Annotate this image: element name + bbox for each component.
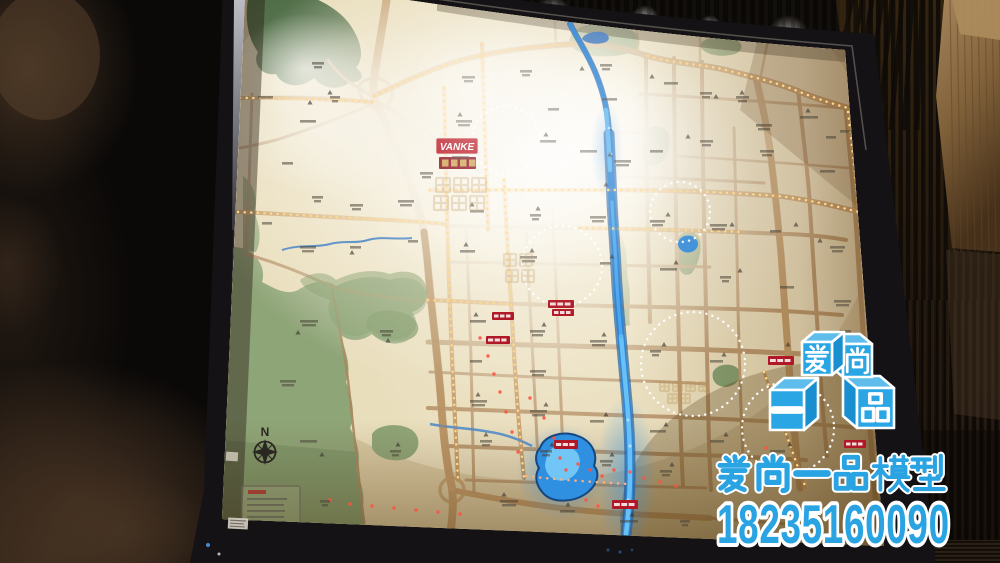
- svg-text:18235160090: 18235160090: [717, 494, 950, 555]
- svg-text:N: N: [261, 425, 270, 439]
